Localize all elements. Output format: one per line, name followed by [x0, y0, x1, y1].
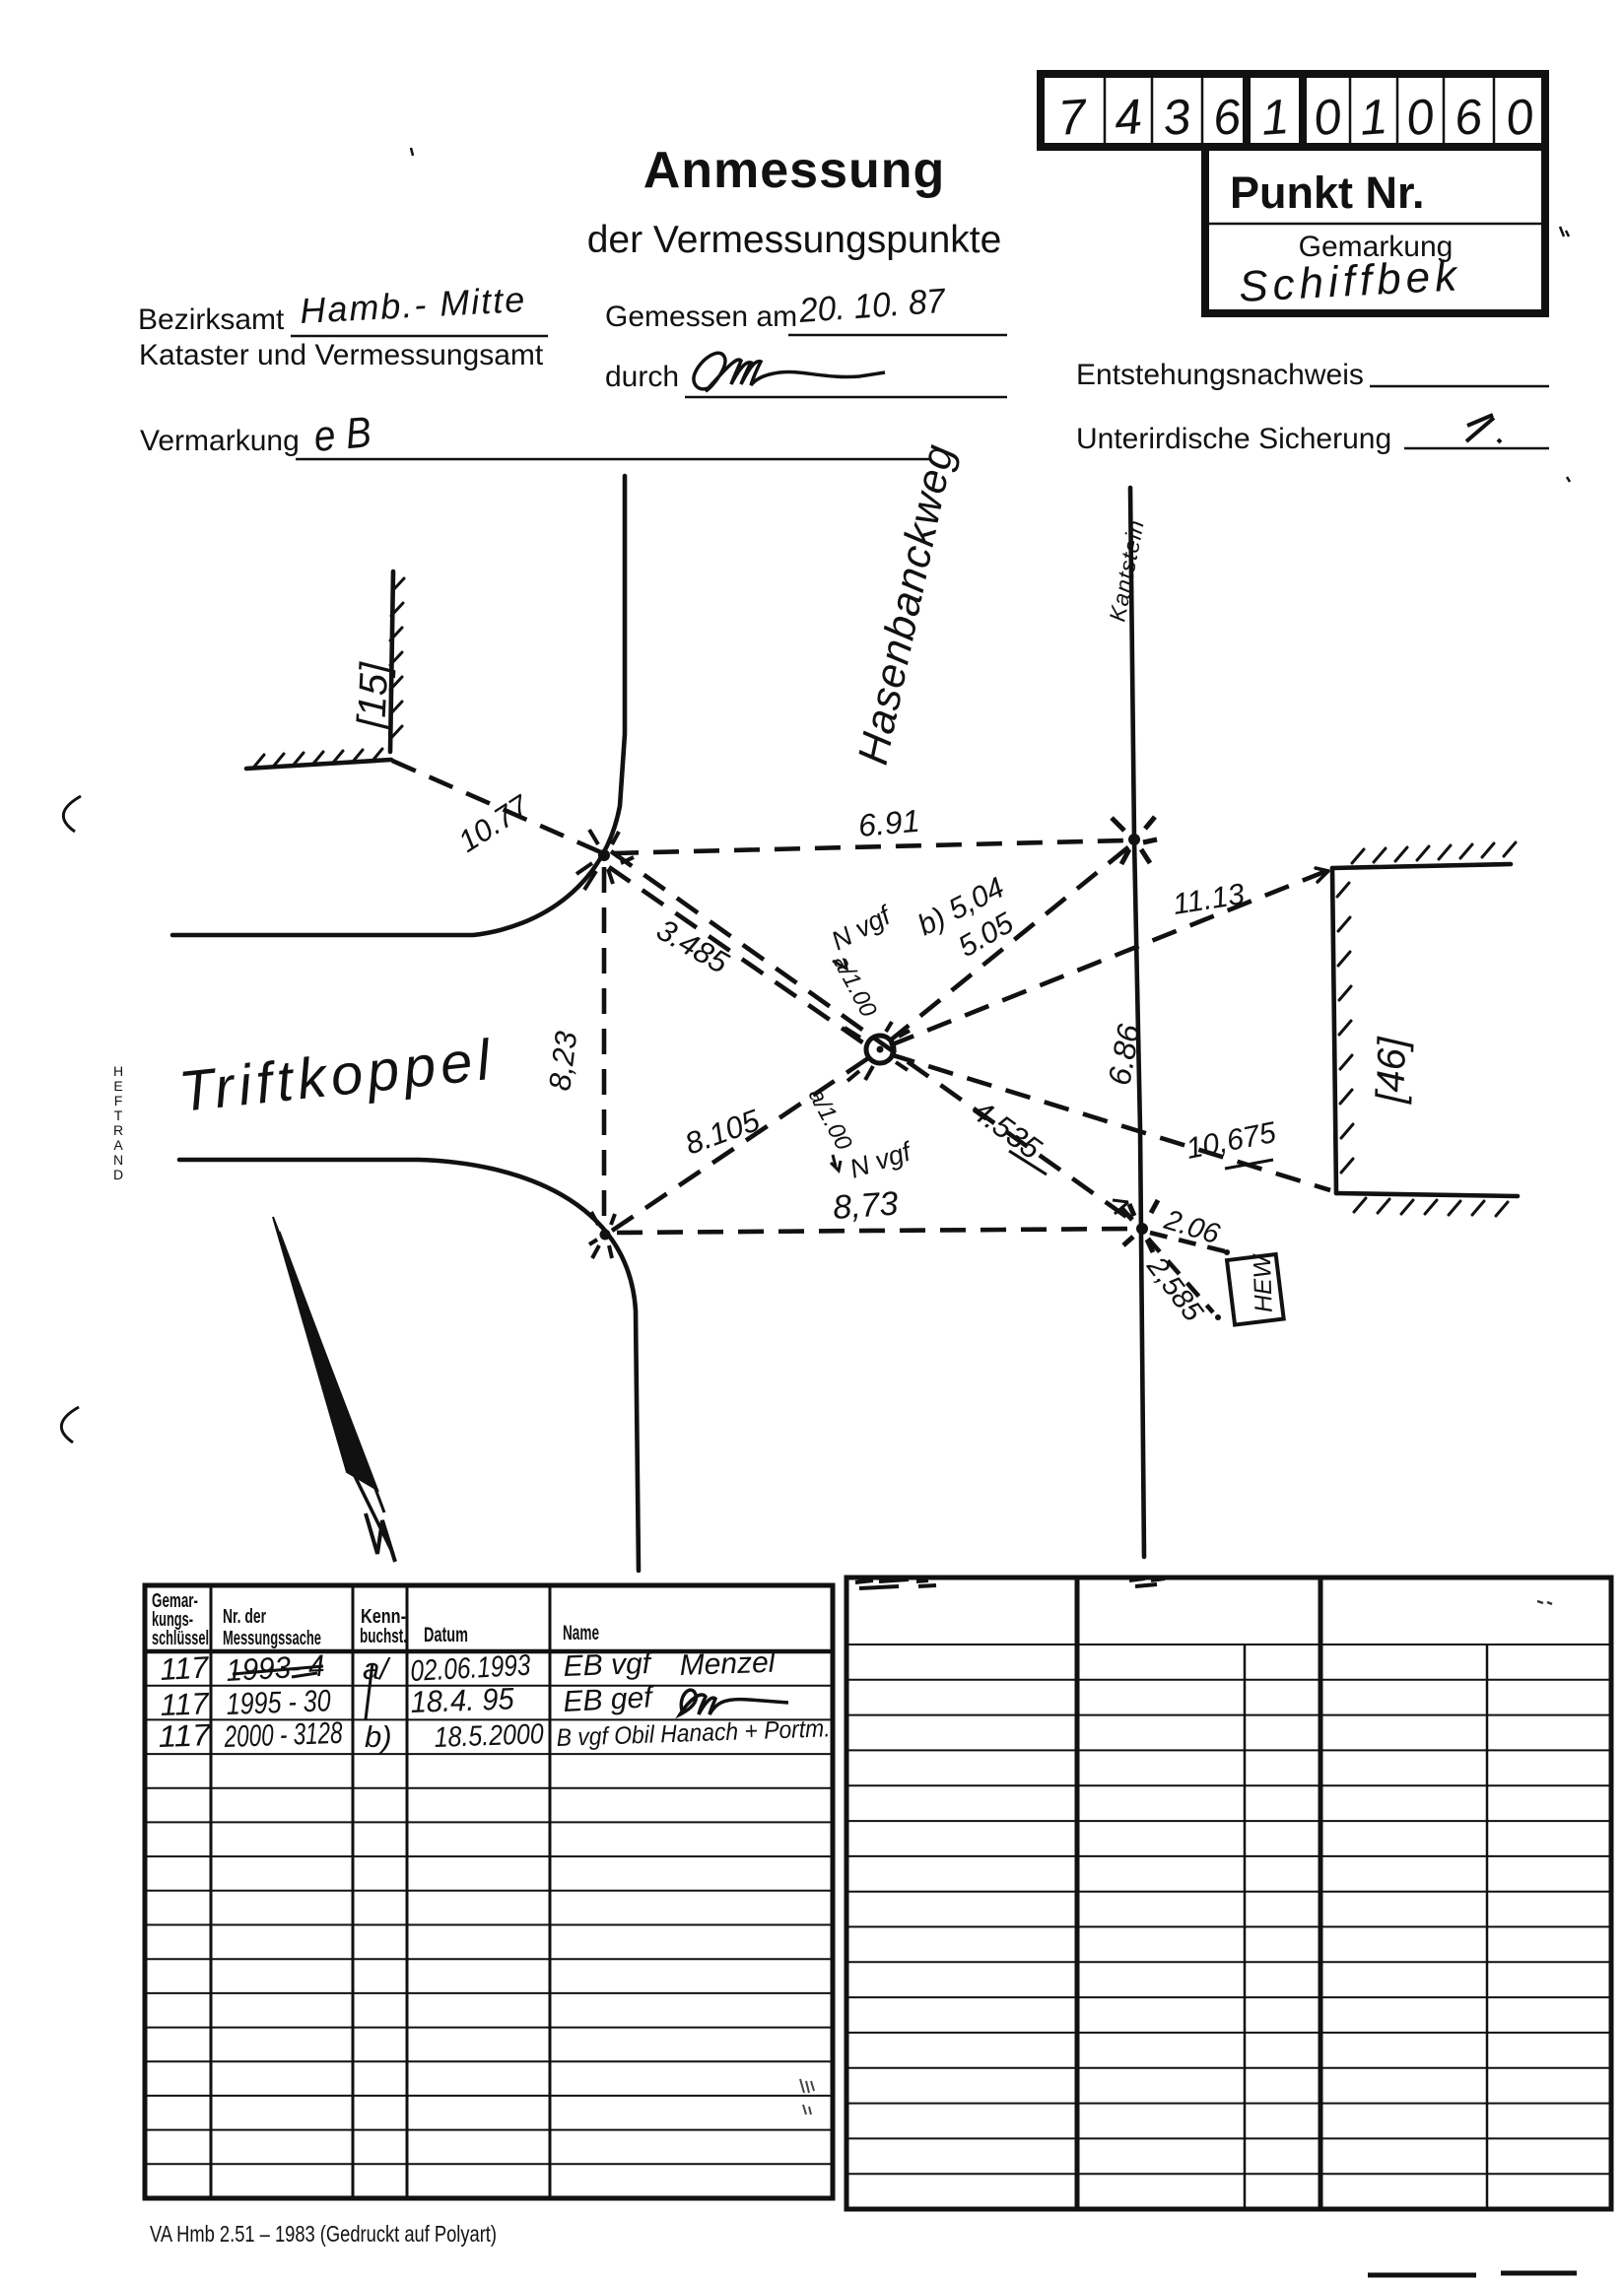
svg-text:Nr. der: Nr. der	[223, 1606, 266, 1628]
svg-text:2000 - 3128: 2000 - 3128	[223, 1715, 343, 1754]
svg-text:Vermarkung: Vermarkung	[140, 425, 300, 457]
svg-text:18.4. 95: 18.4. 95	[410, 1681, 515, 1719]
svg-text:[46]: [46]	[1369, 1036, 1414, 1105]
svg-text:HEW: HEW	[1249, 1252, 1278, 1313]
svg-text:Menzel: Menzel	[679, 1646, 777, 1682]
svg-text:EB vgf: EB vgf	[563, 1647, 653, 1683]
svg-text:VA Hmb 2.51 – 1983 (Gedruckt a: VA Hmb 2.51 – 1983 (Gedruckt auf Polyart…	[150, 2221, 497, 2247]
svg-text:6.91: 6.91	[856, 803, 920, 843]
svg-text:EB gef: EB gef	[563, 1681, 655, 1718]
svg-text:Kenn-: Kenn-	[361, 1606, 406, 1628]
svg-text:8,23: 8,23	[542, 1030, 583, 1093]
svg-text:117: 117	[160, 1649, 212, 1687]
svg-text:a/: a/	[363, 1651, 391, 1686]
svg-text:117: 117	[158, 1717, 213, 1754]
svg-text:1: 1	[1259, 89, 1291, 146]
svg-text:Datum: Datum	[424, 1624, 468, 1646]
svg-text:[15]: [15]	[350, 661, 397, 731]
svg-text:4: 4	[1113, 89, 1145, 146]
svg-text:Bezirksamt: Bezirksamt	[138, 303, 285, 336]
svg-text:Entstehungsnachweis: Entstehungsnachweis	[1076, 359, 1364, 391]
svg-text:Gemessen am: Gemessen am	[605, 301, 797, 333]
svg-text:Kataster und Vermessungsamt: Kataster und Vermessungsamt	[139, 339, 544, 371]
svg-text:Unterirdische Sicherung: Unterirdische Sicherung	[1076, 423, 1391, 455]
svg-text:schlüssel: schlüssel	[152, 1628, 209, 1649]
svg-text:durch: durch	[605, 361, 679, 393]
svg-text:18.5.2000: 18.5.2000	[434, 1718, 544, 1754]
svg-text:Punkt Nr.: Punkt Nr.	[1230, 168, 1425, 218]
svg-text:Anmessung: Anmessung	[643, 142, 946, 199]
svg-text:b): b)	[365, 1719, 392, 1754]
svg-text:buchst.: buchst.	[360, 1626, 407, 1647]
svg-text:e B: e B	[312, 408, 373, 461]
svg-text:der Vermessungspunkte: der Vermessungspunkte	[587, 219, 1002, 261]
svg-text:6: 6	[1453, 89, 1485, 146]
svg-text:1: 1	[1358, 89, 1389, 146]
svg-text:8,73: 8,73	[832, 1184, 900, 1227]
svg-text:Name: Name	[563, 1622, 599, 1644]
svg-text:6: 6	[1211, 89, 1244, 146]
svg-text:Messungssache: Messungssache	[223, 1628, 321, 1649]
svg-text:HEFTRAND: HEFTRAND	[113, 1063, 123, 1182]
